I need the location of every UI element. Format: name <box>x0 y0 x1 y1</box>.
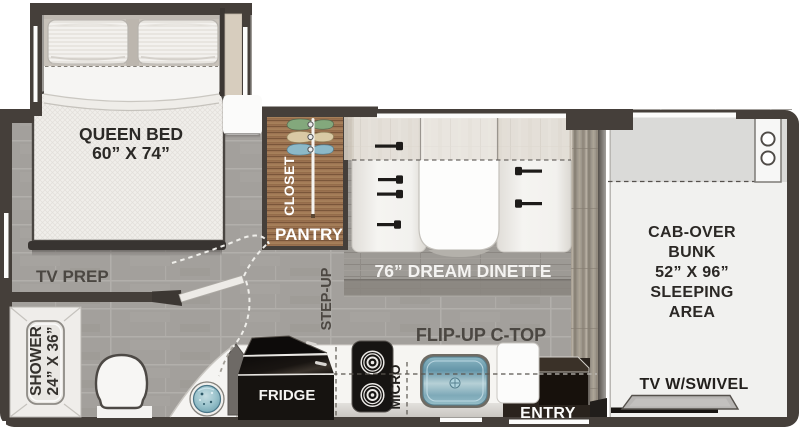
svg-text:FLIP-UP C-TOP: FLIP-UP C-TOP <box>416 325 546 345</box>
svg-text:CAB-OVER: CAB-OVER <box>648 224 736 241</box>
svg-text:AREA: AREA <box>669 304 716 321</box>
svg-text:QUEEN BED: QUEEN BED <box>79 124 183 144</box>
svg-text:BUNK: BUNK <box>668 244 716 261</box>
svg-text:52” X 96”: 52” X 96” <box>655 264 729 281</box>
svg-text:SHOWER: SHOWER <box>28 326 45 396</box>
svg-text:TV PREP: TV PREP <box>36 267 109 286</box>
svg-text:PANTRY: PANTRY <box>275 225 344 244</box>
svg-text:CLOSET: CLOSET <box>281 156 297 216</box>
svg-text:FRIDGE: FRIDGE <box>259 387 316 404</box>
svg-text:STEP-UP: STEP-UP <box>319 267 335 330</box>
svg-text:SLEEPING: SLEEPING <box>650 284 733 301</box>
svg-text:76” DREAM DINETTE: 76” DREAM DINETTE <box>375 261 552 281</box>
svg-text:24” X 36”: 24” X 36” <box>45 327 62 396</box>
svg-text:TV W/SWIVEL: TV W/SWIVEL <box>639 376 748 393</box>
svg-text:60” X 74”: 60” X 74” <box>92 143 170 163</box>
svg-text:ENTRY: ENTRY <box>520 405 576 422</box>
svg-text:MICRO: MICRO <box>388 365 403 410</box>
